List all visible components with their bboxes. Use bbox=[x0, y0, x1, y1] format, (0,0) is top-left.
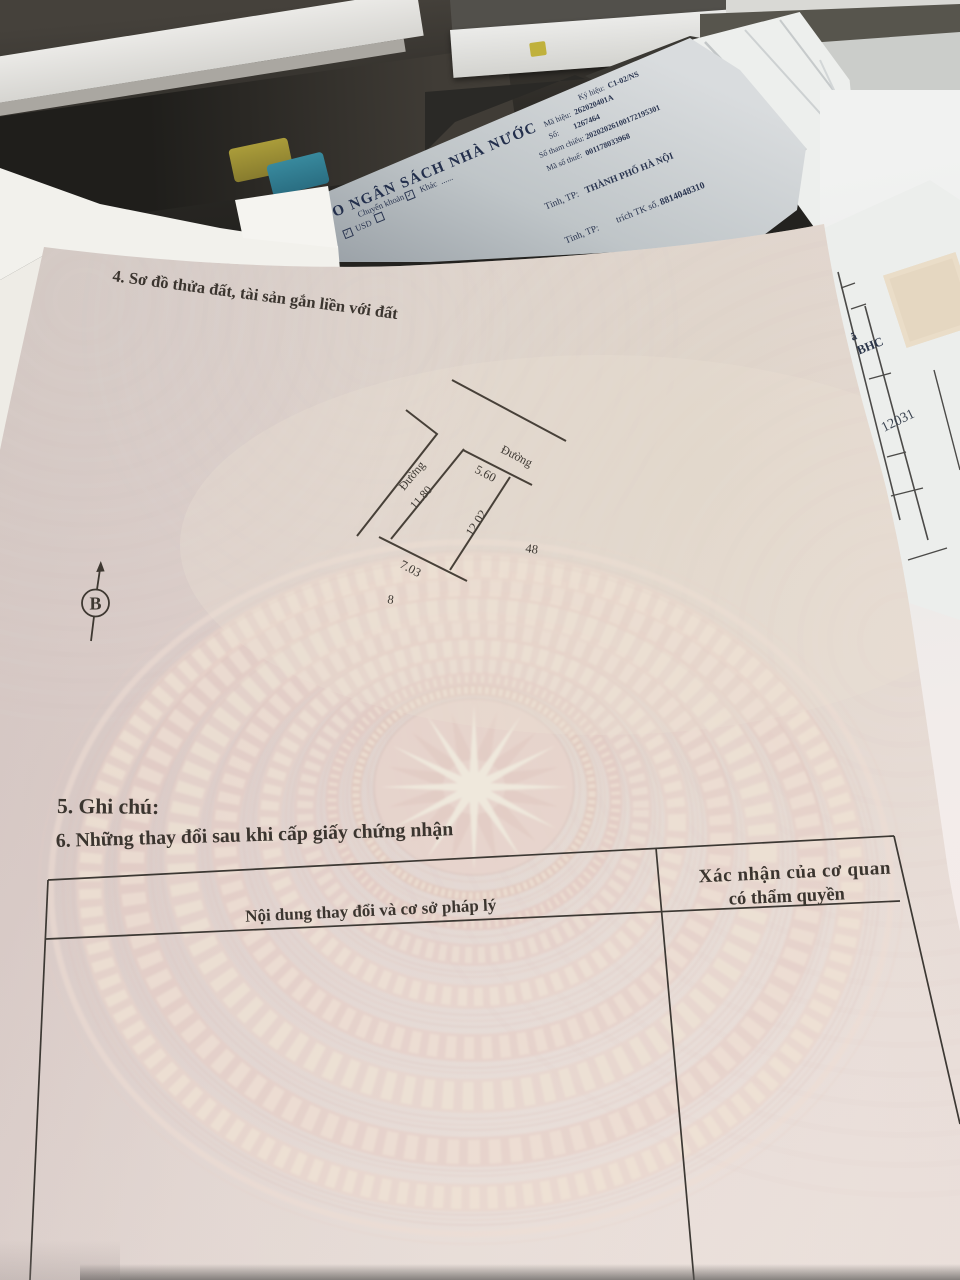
svg-text:B: B bbox=[89, 594, 101, 614]
svg-text:5. Ghi chú:: 5. Ghi chú: bbox=[57, 794, 159, 819]
svg-text:48: 48 bbox=[525, 541, 539, 557]
